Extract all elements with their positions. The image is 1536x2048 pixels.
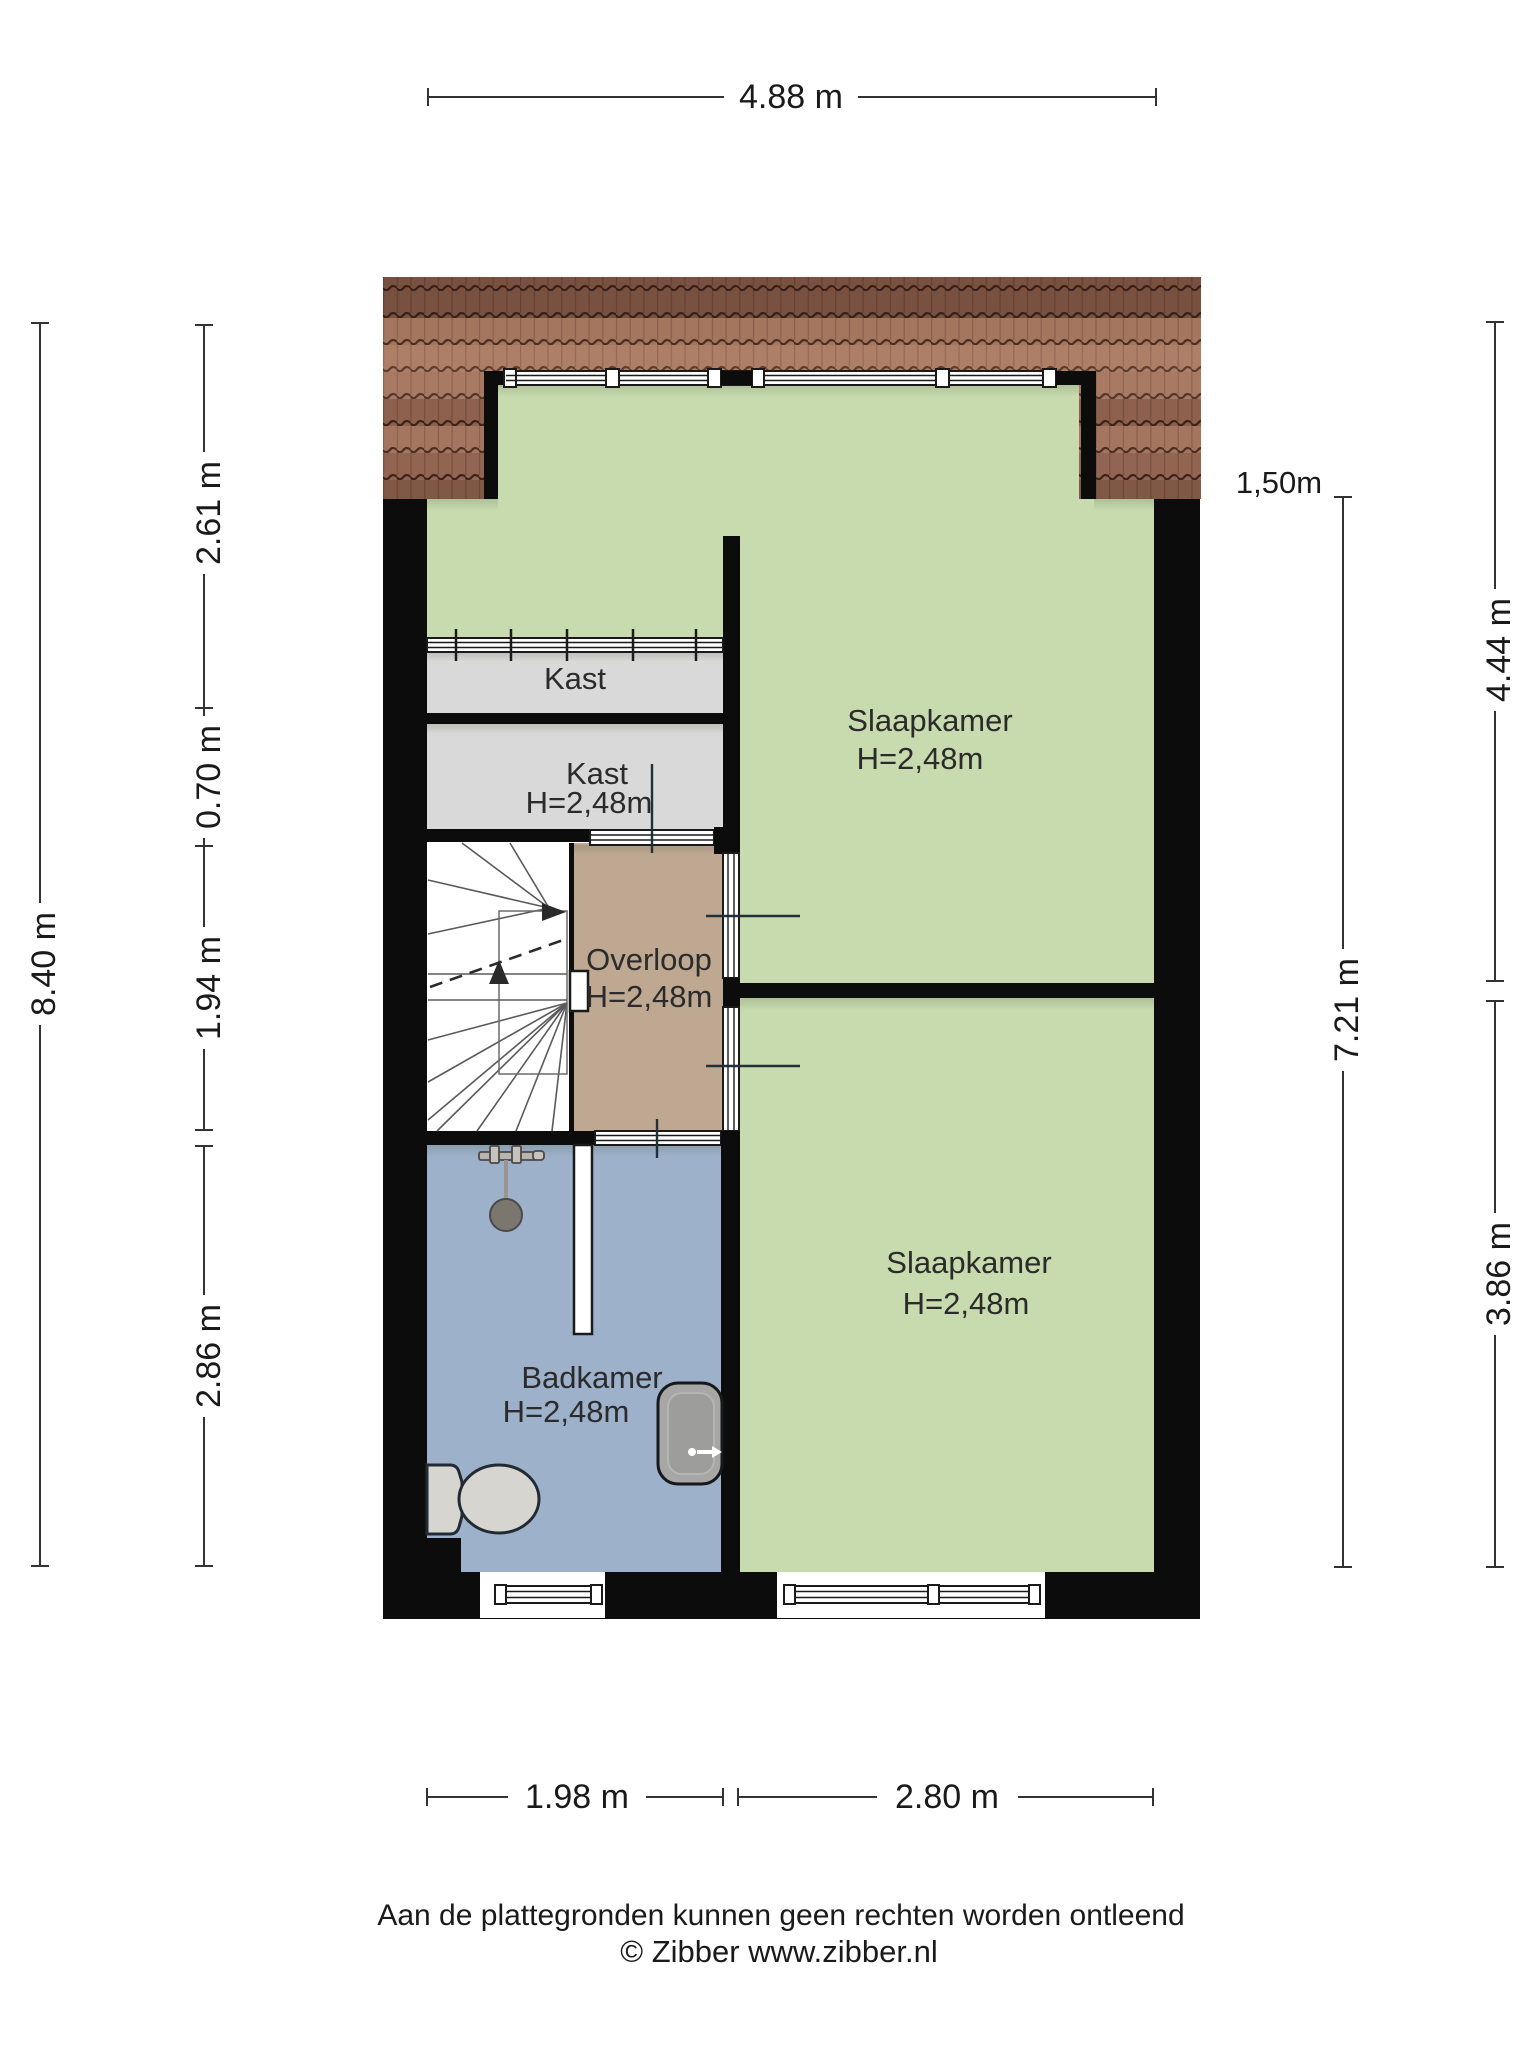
svg-text:H=2,48m: H=2,48m <box>903 1286 1030 1321</box>
svg-text:H=2,48m: H=2,48m <box>503 1394 630 1429</box>
svg-text:2.80 m: 2.80 m <box>895 1778 999 1816</box>
svg-text:3.86 m: 3.86 m <box>1480 1222 1518 1326</box>
svg-text:4.44 m: 4.44 m <box>1480 598 1518 702</box>
svg-text:1,50m: 1,50m <box>1236 465 1322 500</box>
svg-text:Slaapkamer: Slaapkamer <box>847 703 1012 738</box>
svg-text:© Zibber www.zibber.nl: © Zibber www.zibber.nl <box>620 1934 937 1969</box>
svg-text:2.86 m: 2.86 m <box>190 1304 228 1408</box>
svg-text:7.21 m: 7.21 m <box>1328 958 1366 1062</box>
svg-text:Badkamer: Badkamer <box>521 1360 662 1395</box>
svg-text:Slaapkamer: Slaapkamer <box>886 1245 1051 1280</box>
svg-text:Aan de plattegronden kunnen ge: Aan de plattegronden kunnen geen rechten… <box>377 1899 1184 1932</box>
svg-text:1.98 m: 1.98 m <box>525 1778 629 1816</box>
svg-text:H=2,48m: H=2,48m <box>857 741 984 776</box>
svg-text:Overloop: Overloop <box>586 942 712 977</box>
svg-text:H=2,48m: H=2,48m <box>526 785 653 820</box>
svg-text:2.61 m: 2.61 m <box>190 461 228 565</box>
svg-text:Kast: Kast <box>544 661 606 696</box>
svg-text:0.70 m: 0.70 m <box>190 725 228 829</box>
svg-text:4.88 m: 4.88 m <box>739 78 843 116</box>
svg-text:8.40 m: 8.40 m <box>25 912 63 1016</box>
svg-text:H=2,48m: H=2,48m <box>586 979 713 1014</box>
svg-text:1.94 m: 1.94 m <box>190 936 228 1040</box>
